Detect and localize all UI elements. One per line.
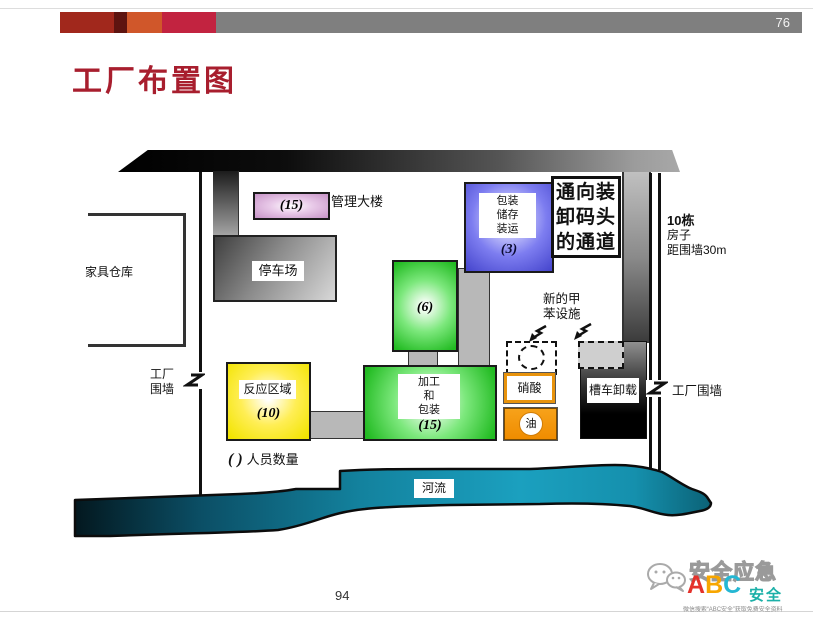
processing-count: (15) <box>365 418 495 434</box>
slide: 76 工厂布置图 停车场 河流 家具仓库 (15) 管理大楼 包装 <box>0 0 813 619</box>
oil-tank-box: 油 <box>504 408 557 440</box>
reaction-area-box: 反应区域 (10) <box>226 362 311 441</box>
unit6-count: (6) <box>394 300 456 316</box>
wall-break-right-icon <box>646 380 668 397</box>
houses-line2: 房子 <box>667 228 726 243</box>
page-number: 94 <box>335 588 349 603</box>
packaging-line1: 包装 <box>479 194 536 208</box>
header-bar: 76 <box>60 12 802 33</box>
corridor-line2: 卸码头 <box>554 205 618 230</box>
parking-label: 停车场 <box>252 261 304 281</box>
toluene-arrow-right-icon <box>572 322 594 342</box>
houses-line1: 10栋 <box>667 213 726 228</box>
top-road <box>118 150 680 172</box>
packaging-storage-box: 包装 储存 装运 (3) <box>464 182 554 273</box>
factory-wall-left-label: 工厂 围墙 <box>150 367 174 397</box>
admin-building-count: (15) <box>280 198 303 213</box>
admin-building-label: 管理大楼 <box>331 194 383 209</box>
packaging-line3: 装运 <box>479 222 536 236</box>
packaging-line2: 储存 <box>479 208 536 222</box>
accent-block-3 <box>127 12 162 33</box>
top-divider <box>0 8 813 9</box>
factory-wall-right-line-1 <box>649 173 652 470</box>
wall-left-line2: 围墙 <box>150 382 174 397</box>
oil-tank-circle: 油 <box>519 412 543 436</box>
logo-slogan: 微信搜索“ABC安全”获取免费安全资料 <box>683 605 783 614</box>
slide-number-top: 76 <box>776 12 790 33</box>
toluene-site-1 <box>506 341 557 375</box>
processing-line1: 加工 <box>398 375 460 389</box>
reaction-area-label: 反应区域 <box>239 380 296 399</box>
accent-block-4 <box>162 12 216 33</box>
personnel-legend: ( )人员数量 <box>228 449 299 469</box>
wall-left-line1: 工厂 <box>150 367 174 382</box>
legend-symbol: ( ) <box>228 451 243 468</box>
houses-line3: 距围墙30m <box>667 243 726 258</box>
corridor-line1: 通向装 <box>554 180 618 205</box>
river-label: 河流 <box>414 479 454 498</box>
footer-logo: 安全应急 ABC 安全 微信搜索“ABC安全”获取免费安全资料 <box>643 554 811 614</box>
logo-abc: ABC <box>687 571 741 600</box>
packaging-count: (3) <box>466 242 552 258</box>
parking-area: 停车场 <box>213 235 337 302</box>
wall-break-left-icon <box>183 372 205 389</box>
factory-wall-right-line-2 <box>658 173 661 470</box>
corridor-line3: 的通道 <box>554 230 618 255</box>
admin-building-box: (15) <box>253 192 330 220</box>
toluene-site-2 <box>578 341 624 369</box>
toluene-line2: 苯设施 <box>543 307 581 322</box>
toluene-facility-label: 新的甲 苯设施 <box>543 292 581 322</box>
toluene-line1: 新的甲 <box>543 292 581 307</box>
legend-text: 人员数量 <box>247 452 299 467</box>
page-title: 工厂布置图 <box>72 56 237 100</box>
dock-corridor-label: 通向装 卸码头 的通道 <box>551 176 621 258</box>
wechat-icon <box>645 562 687 594</box>
tank-truck-unloading-label: 槽车卸载 <box>587 378 639 403</box>
toluene-tank-circle <box>518 345 545 370</box>
processing-line2: 和 <box>398 389 460 403</box>
furniture-warehouse: 家具仓库 <box>88 213 186 347</box>
connector-reaction-processing <box>307 411 365 439</box>
unit6-box: (6) <box>392 260 458 352</box>
factory-wall-left-line <box>199 172 202 498</box>
left-access-road <box>213 171 239 235</box>
reaction-area-count: (10) <box>228 406 309 422</box>
river-shape <box>70 455 715 545</box>
furniture-warehouse-label: 家具仓库 <box>83 262 135 281</box>
accent-block-2 <box>114 12 127 33</box>
nitric-acid-box: 硝酸 <box>504 373 555 403</box>
houses-note: 10栋 房子 距围墙30m <box>667 213 726 258</box>
processing-packaging-box: 加工 和 包装 (15) <box>363 365 497 441</box>
middle-road <box>458 268 490 369</box>
processing-line3: 包装 <box>398 403 460 417</box>
factory-wall-right-label: 工厂围墙 <box>672 384 722 399</box>
right-access-road <box>622 172 651 343</box>
accent-block-1 <box>60 12 114 33</box>
logo-brand-sub: 安全 <box>749 584 783 605</box>
